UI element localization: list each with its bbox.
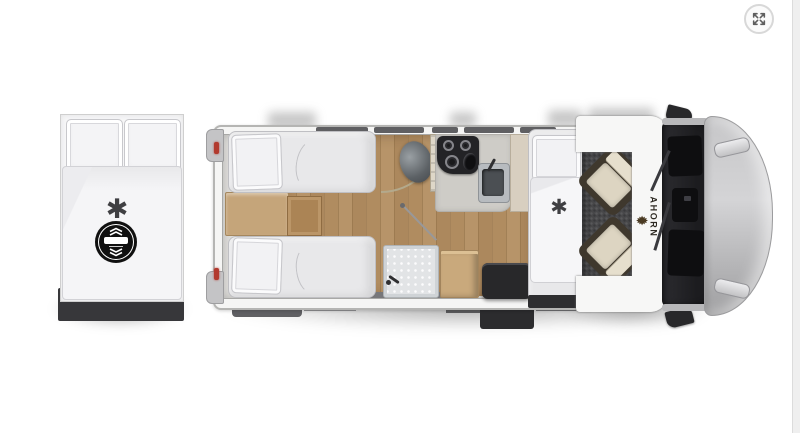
- chevron-up-icon: [108, 227, 124, 236]
- window-segment: [464, 127, 514, 133]
- entry-seat: [482, 263, 531, 299]
- roof-pillar-top: [662, 118, 708, 125]
- bed-bar-glyph: [104, 237, 128, 244]
- burner: [460, 140, 471, 151]
- bedding-asterisk: ✱: [100, 196, 134, 223]
- bedding-asterisk: ✱: [545, 197, 573, 218]
- rear-bed-bottom-pillow: [231, 237, 283, 295]
- page-edge-strip: [792, 0, 800, 433]
- sink-basin: [482, 169, 504, 196]
- dashboard-through-glass: [667, 135, 702, 176]
- window-segment: [432, 127, 458, 133]
- dashboard-through-glass: [667, 229, 705, 276]
- overcab-bottom-bar: [576, 276, 668, 312]
- tail-light-icon: [214, 142, 219, 154]
- tail-light-icon: [214, 268, 219, 280]
- floorplan-viewer: ✱: [0, 0, 800, 433]
- rear-wardrobe: [225, 192, 289, 236]
- shower-drain: [386, 280, 391, 285]
- dashboard-detail: [684, 196, 691, 201]
- window-segment: [374, 127, 424, 133]
- front-bed-pillow: [532, 135, 581, 181]
- rear-step: [287, 196, 322, 236]
- bed-logo-underline: [109, 246, 123, 247]
- dashboard-through-glass: [672, 188, 698, 222]
- burner: [445, 155, 459, 169]
- brand-name: AHORN: [648, 197, 658, 238]
- burner: [443, 140, 454, 151]
- shower-door-knob: [400, 203, 405, 208]
- adjustable-bed-icon: [95, 221, 137, 263]
- shower-tray: [383, 245, 439, 298]
- chevron-down-icon: [108, 248, 124, 257]
- expand-button[interactable]: [744, 4, 774, 34]
- expand-arrows-icon: [751, 11, 767, 27]
- cabinet: [440, 250, 479, 298]
- rear-bed-top-pillow: [231, 133, 283, 191]
- roof-pillar-bottom: [662, 304, 708, 311]
